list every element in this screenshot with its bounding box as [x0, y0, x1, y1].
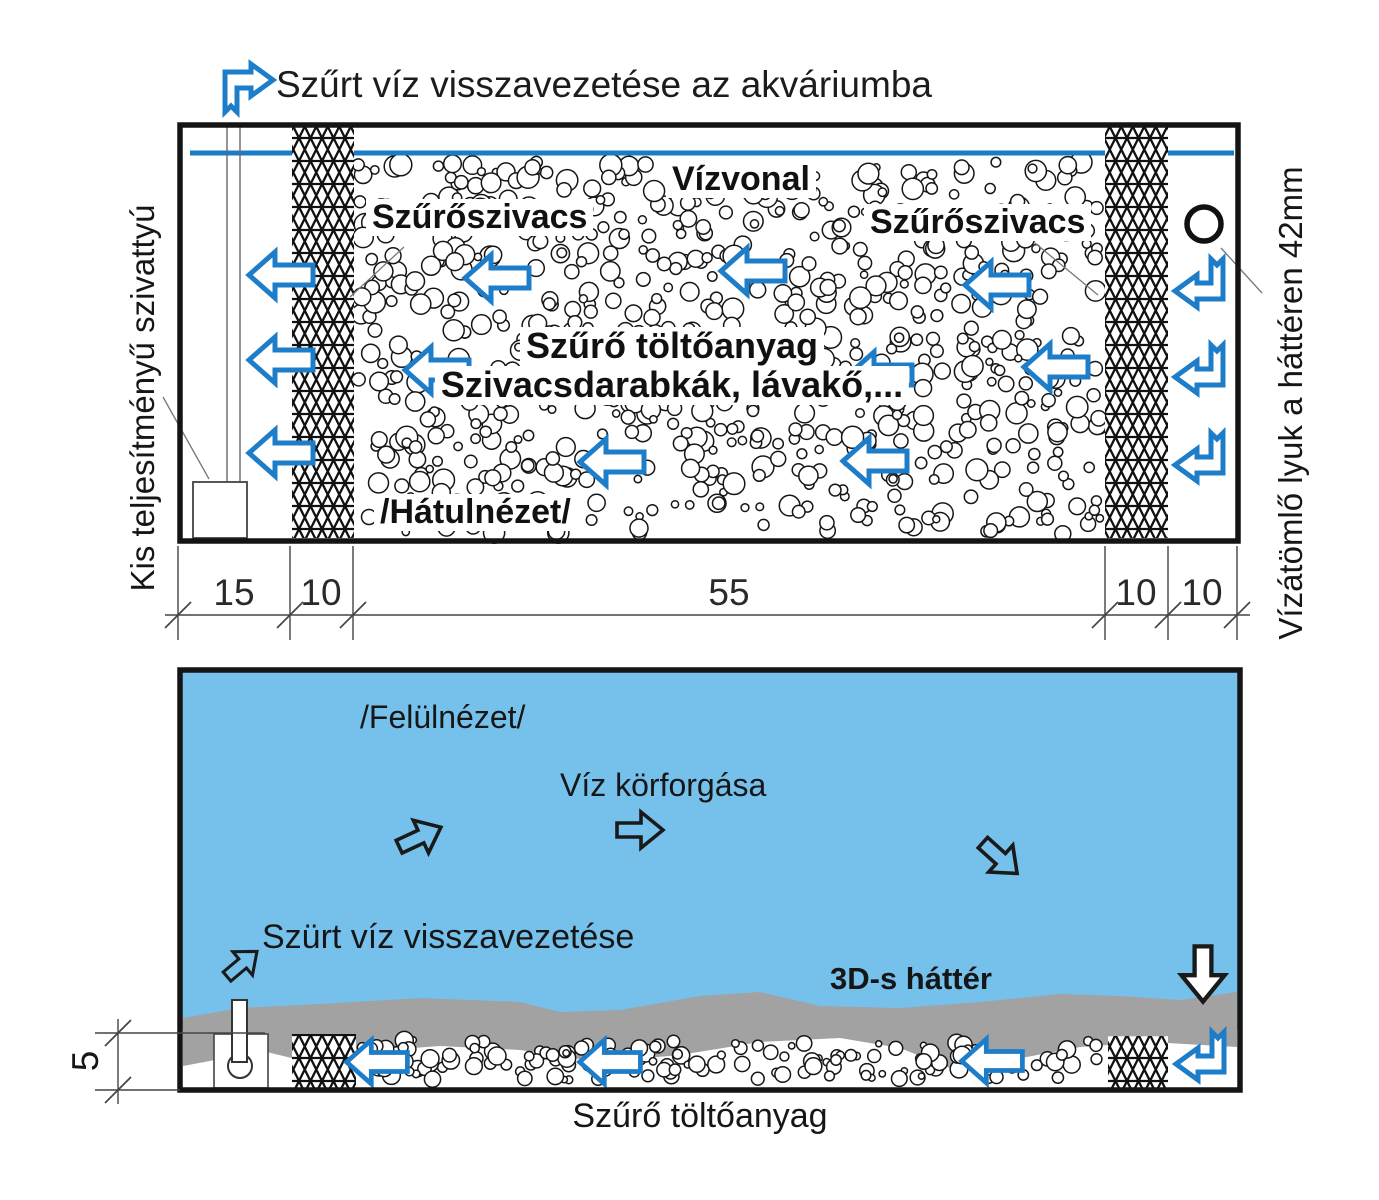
filter-sponge-right	[1105, 126, 1168, 538]
flow-arrow-bent-icon	[1175, 259, 1223, 307]
flow-arrow-bent-icon	[1175, 433, 1223, 481]
hole-vertical-label: Vízátömlő lyuk a háttéren 42mm	[1269, 125, 1313, 681]
dimension-55: 55	[708, 572, 749, 614]
water-line-label: Vízvonal	[666, 161, 816, 198]
filter-sponge-right	[1108, 1036, 1168, 1088]
top-view-tank	[95, 670, 1240, 1104]
filter-sponge-left	[292, 126, 354, 538]
circulation-label: Víz körforgása	[560, 767, 766, 804]
sponge-label-left: Szűrőszivacs	[366, 199, 593, 236]
bottom-media-label: Szűrő töltőanyag	[572, 1097, 827, 1136]
media-label-line1: Szűrő töltőanyag	[520, 327, 824, 366]
depth-dimension-5: 5	[64, 1031, 108, 1091]
pump-vertical-label: Kis teljesítményű szivattyú	[121, 178, 165, 618]
return-water-title: Szűrt víz visszavezetése az akváriumba	[276, 64, 932, 106]
flow-arrow-bent-icon	[1175, 345, 1223, 393]
pump-pipe	[232, 1000, 247, 1062]
dimension-10c: 10	[1181, 572, 1222, 614]
aquarium-filter-diagram: Szűrt víz visszavezetése az akváriumba K…	[0, 0, 1379, 1200]
media-label-line2: Szivacsdarabkák, lávakő,...	[435, 366, 909, 405]
dimension-10a: 10	[300, 572, 341, 614]
rear-view-tank	[163, 64, 1262, 543]
dimension-15: 15	[213, 572, 254, 614]
pass-through-hole	[1187, 207, 1221, 241]
top-view-label: /Felülnézet/	[360, 699, 525, 736]
rear-view-label: /Hátulnézet/	[374, 494, 577, 531]
return-flow-arrow-icon	[225, 64, 273, 112]
pump-body	[193, 482, 247, 538]
return-water-label: Szürt víz visszavezetése	[262, 918, 634, 957]
background-3d-label: 3D-s háttér	[830, 961, 992, 997]
dimension-10b: 10	[1115, 572, 1156, 614]
sponge-label-right: Szűrőszivacs	[864, 204, 1091, 241]
